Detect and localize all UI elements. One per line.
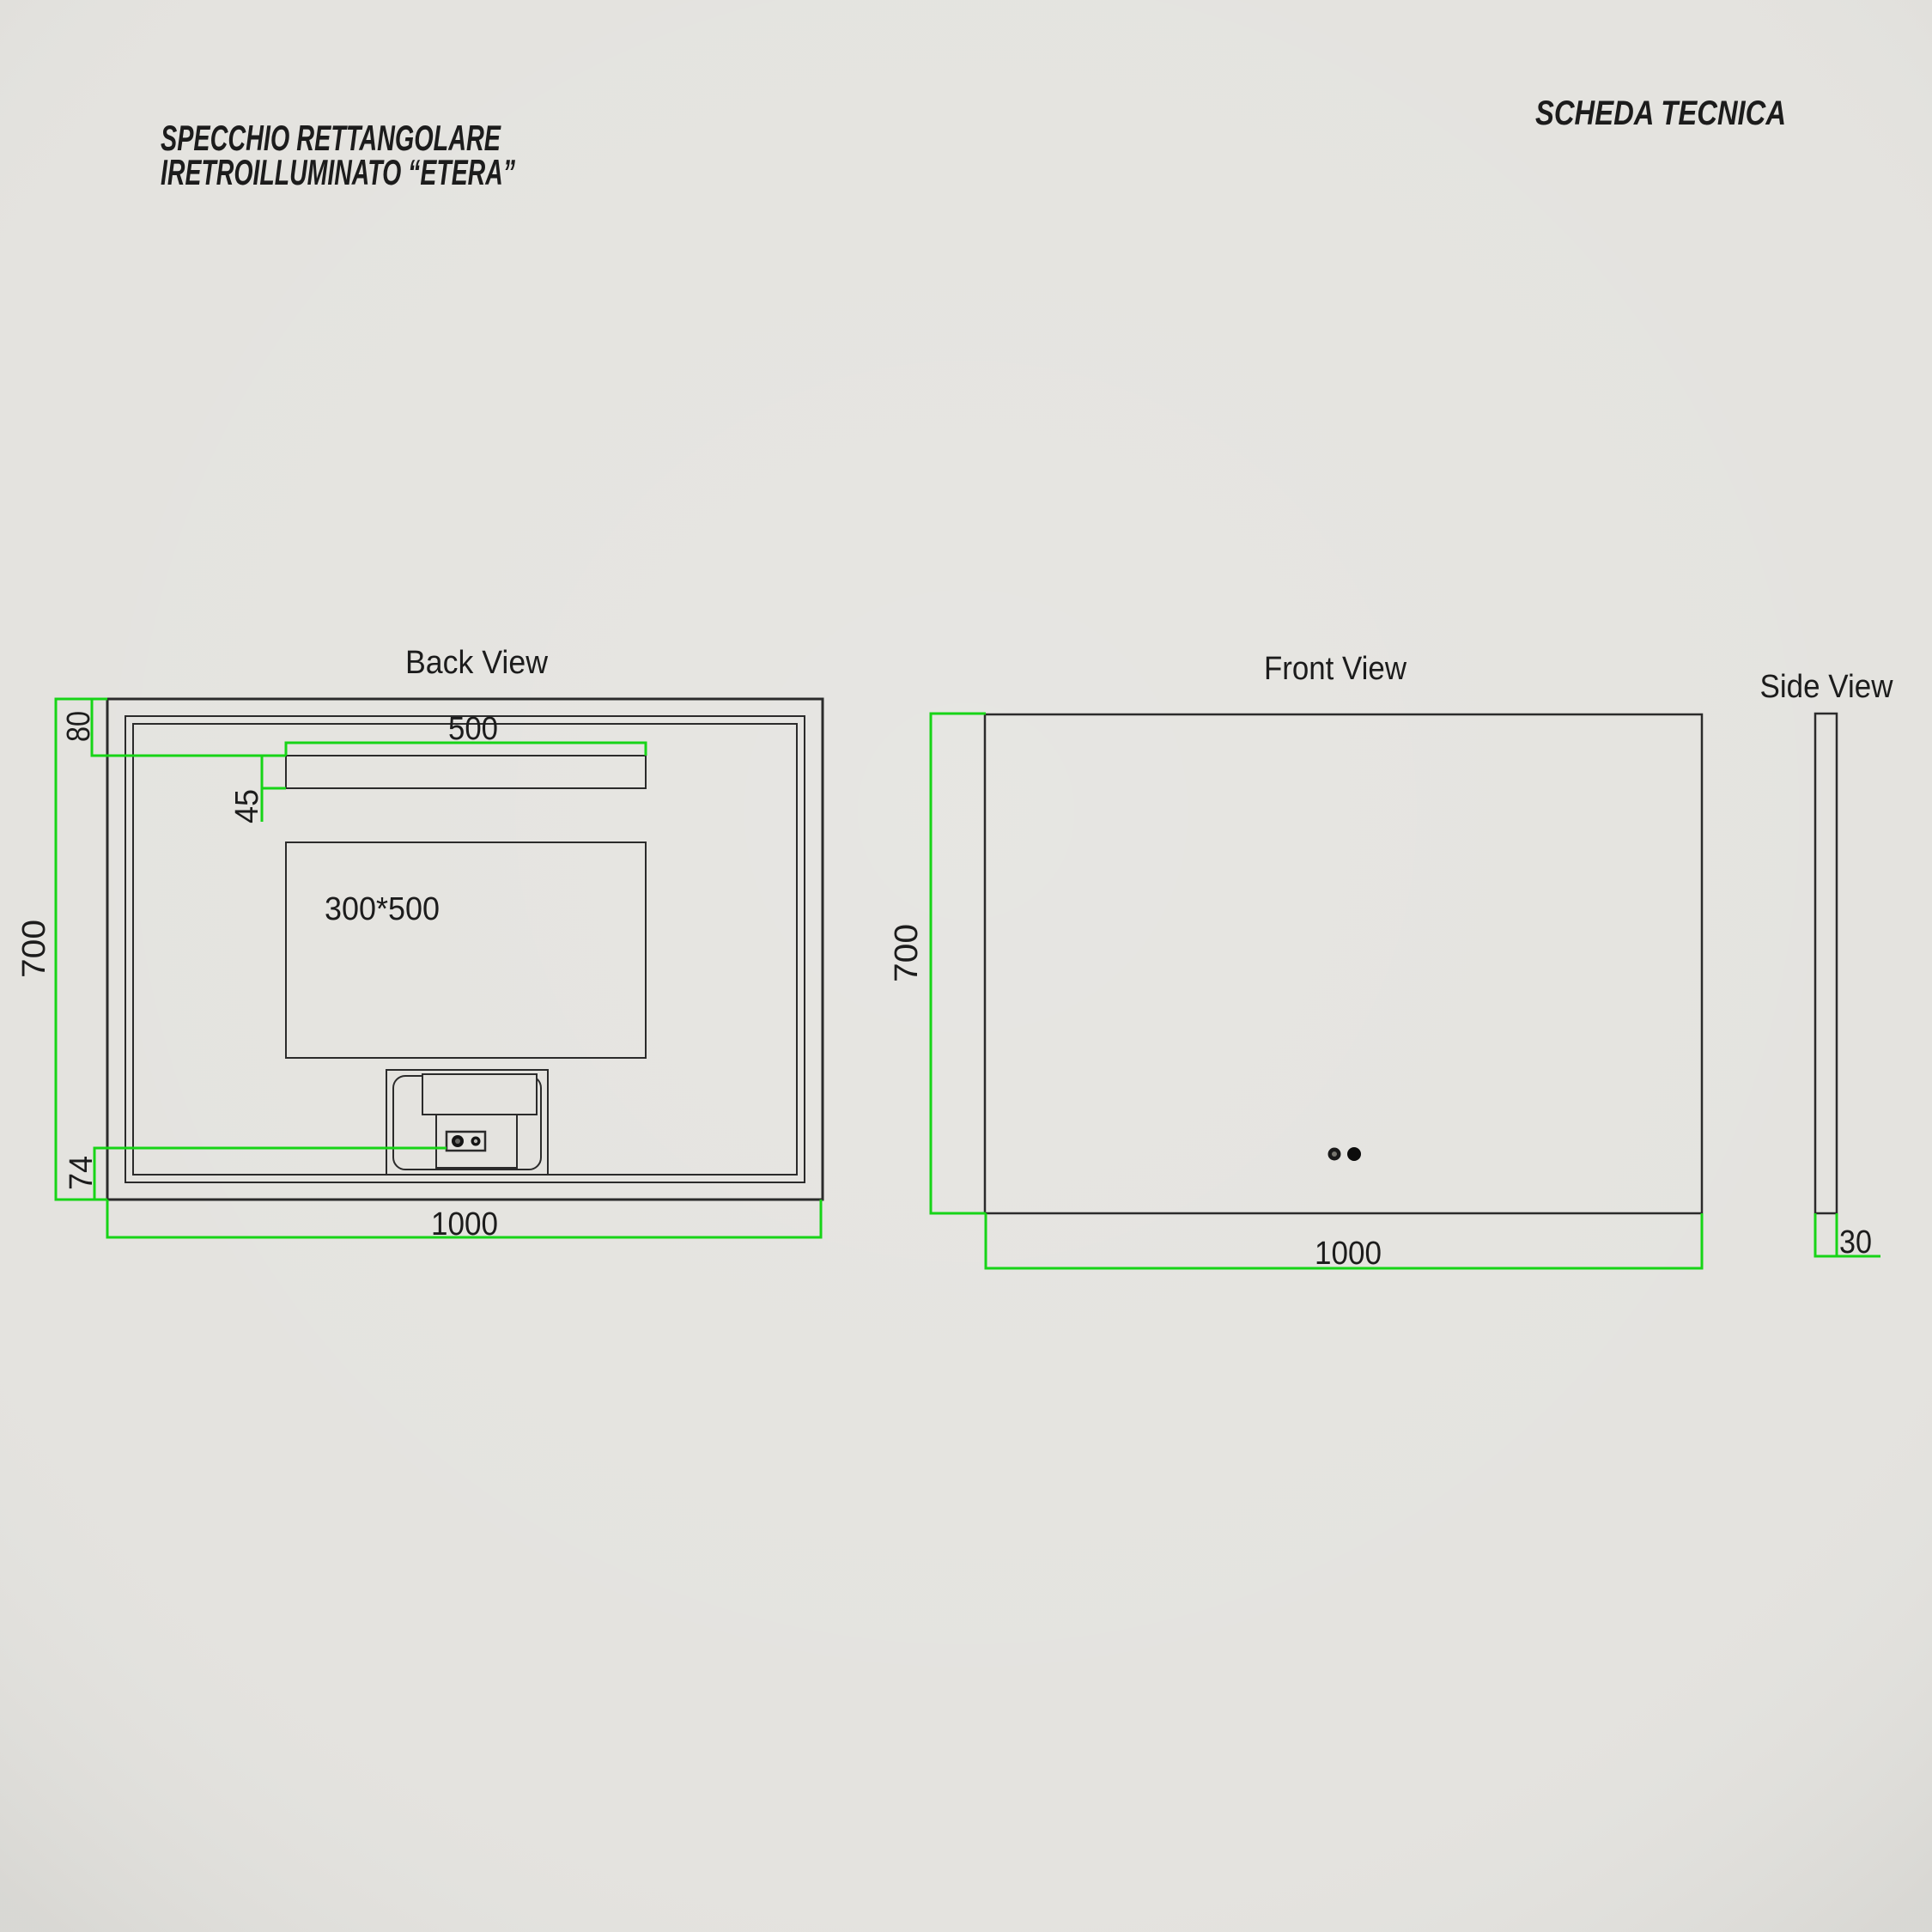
sensor-dot-right — [1347, 1147, 1361, 1161]
background-vignette — [0, 0, 1932, 1932]
dim-label-side-thickness: 30 — [1839, 1224, 1872, 1261]
doc-title: SCHEDA TECNICA — [1535, 94, 1786, 132]
dim-label-back-offset-bottom: 74 — [64, 1156, 100, 1190]
technical-drawing-canvas: SPECCHIO RETTANGOLARE IRETROILLUMINATO “… — [0, 0, 1932, 1932]
dim-label-back-width: 1000 — [431, 1206, 498, 1242]
junction-box — [386, 1070, 548, 1175]
dim-label-back-offset-top: 80 — [61, 711, 97, 742]
back-view-title: Back View — [405, 645, 549, 681]
dim-label-back-height: 700 — [16, 920, 52, 978]
side-view-title: Side View — [1760, 669, 1894, 705]
dim-label-led-width: 500 — [448, 711, 498, 747]
dim-label-front-height: 700 — [889, 924, 925, 982]
dim-label-front-width: 1000 — [1315, 1236, 1382, 1272]
driver-size-label: 300*500 — [325, 891, 440, 927]
terminal-socket-right-center — [474, 1139, 477, 1143]
junction-box-cover — [422, 1074, 537, 1115]
terminal-socket-left-center — [455, 1139, 460, 1144]
dim-label-led-height: 45 — [229, 789, 265, 823]
product-title-line2: IRETROILLUMINATO “ETERA” — [161, 152, 515, 192]
front-view-title: Front View — [1264, 651, 1407, 687]
sensor-dot-left-center — [1332, 1151, 1337, 1157]
